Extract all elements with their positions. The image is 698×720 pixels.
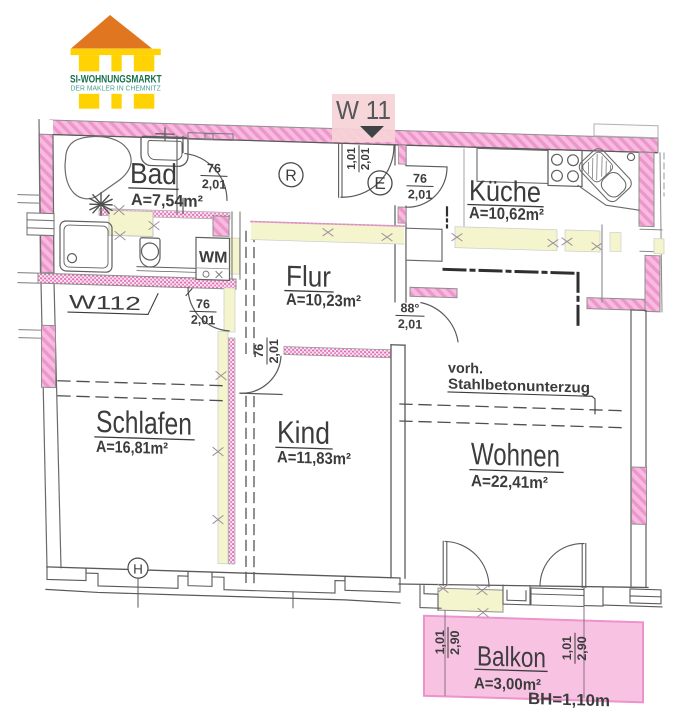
svg-text:76: 76 <box>196 297 210 311</box>
svg-text:E: E <box>374 174 385 193</box>
svg-text:A=10,62m²: A=10,62m² <box>469 204 544 224</box>
svg-text:vorh.: vorh. <box>448 360 483 377</box>
svg-text:2,01: 2,01 <box>202 177 226 192</box>
svg-text:WM: WM <box>199 249 227 267</box>
svg-text:88°: 88° <box>401 301 420 316</box>
svg-text:Bad: Bad <box>130 158 177 191</box>
svg-text:Flur: Flur <box>286 261 331 294</box>
svg-text:1,01: 1,01 <box>346 147 358 170</box>
svg-text:2,01: 2,01 <box>360 147 372 170</box>
svg-text:2,90: 2,90 <box>448 630 462 655</box>
svg-text:A=11,83m²: A=11,83m² <box>277 448 351 468</box>
svg-text:Schlafen: Schlafen <box>96 404 192 442</box>
svg-text:76: 76 <box>207 161 221 175</box>
svg-text:2,01: 2,01 <box>408 187 432 202</box>
svg-text:2,01: 2,01 <box>191 313 215 328</box>
svg-text:A=7,54m²: A=7,54m² <box>131 191 203 211</box>
svg-text:2,90: 2,90 <box>575 636 589 661</box>
svg-text:A=16,81m²: A=16,81m² <box>96 438 168 458</box>
svg-text:H: H <box>133 562 143 577</box>
svg-text:Balkon: Balkon <box>477 640 546 673</box>
svg-text:Kind: Kind <box>277 414 330 451</box>
svg-text:W 11: W 11 <box>336 95 391 125</box>
svg-text:76: 76 <box>413 171 427 185</box>
svg-text:Wohnen: Wohnen <box>471 436 560 474</box>
svg-text:BH=1,10m: BH=1,10m <box>528 690 610 710</box>
svg-text:76: 76 <box>252 344 266 358</box>
svg-text:R: R <box>285 168 297 185</box>
svg-text:W112: W112 <box>69 292 141 315</box>
svg-text:2,01: 2,01 <box>398 317 422 332</box>
svg-text:1,01: 1,01 <box>560 636 574 661</box>
svg-text:A=10,23m²: A=10,23m² <box>286 291 361 311</box>
svg-text:A=22,41m²: A=22,41m² <box>471 472 548 492</box>
svg-text:1,01: 1,01 <box>433 630 447 655</box>
svg-text:DER MAKLER IN CHEMNITZ: DER MAKLER IN CHEMNITZ <box>71 83 162 92</box>
svg-text:2,01: 2,01 <box>267 339 281 364</box>
